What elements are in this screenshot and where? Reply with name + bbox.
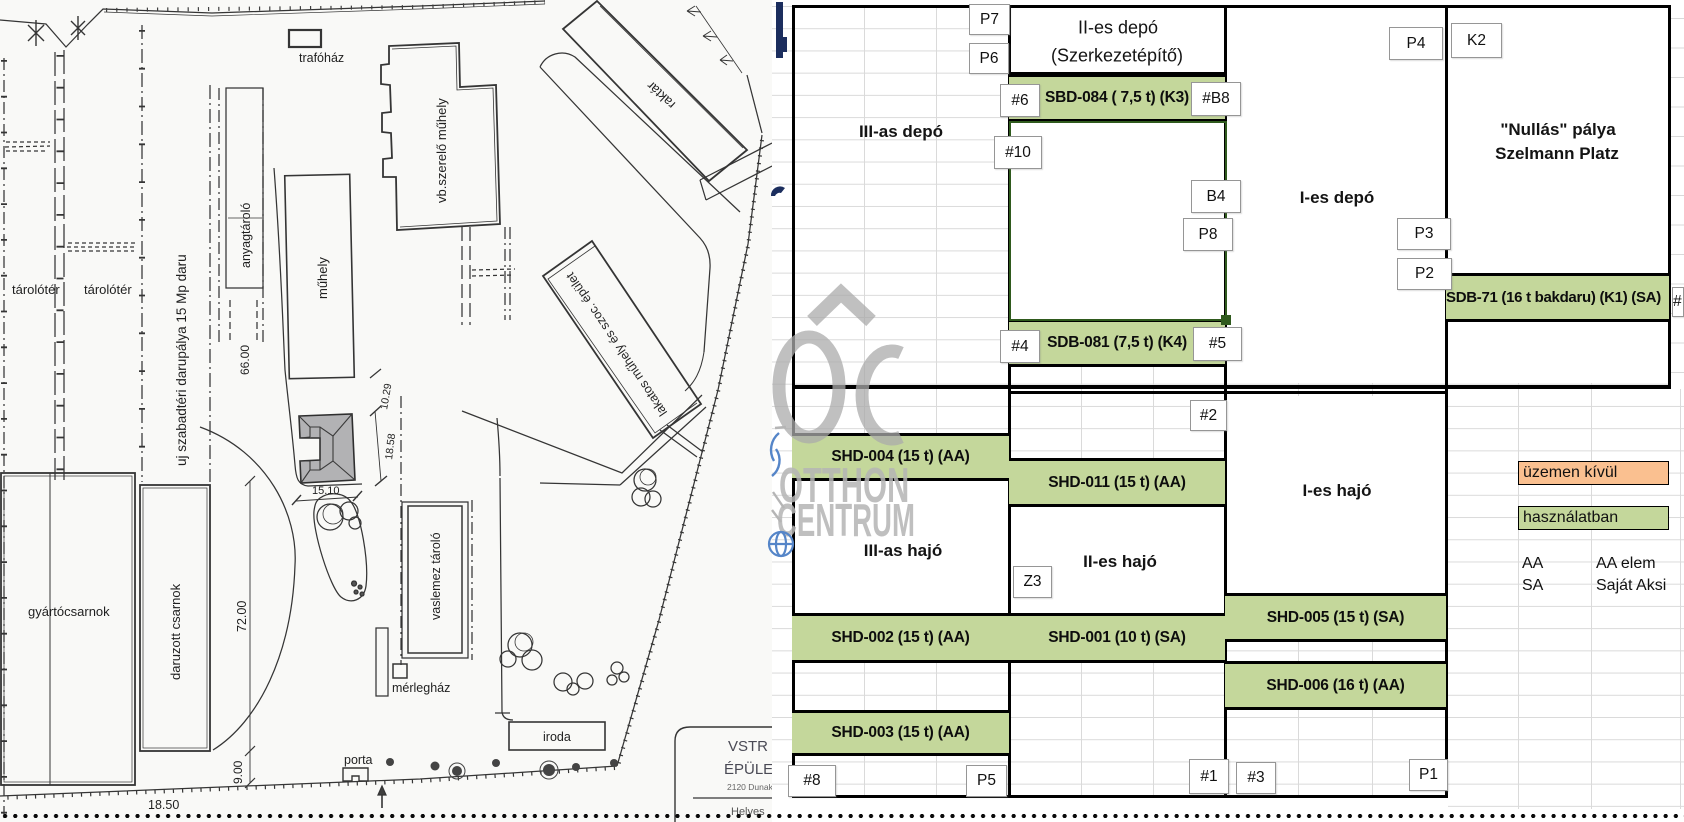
svg-text:72.00: 72.00 xyxy=(235,601,249,632)
svg-text:66.00: 66.00 xyxy=(238,345,252,375)
svg-text:uj szabadtéri darupálya 15 Mp: uj szabadtéri darupálya 15 Mp daru xyxy=(174,254,189,466)
svg-text:15.10: 15.10 xyxy=(312,485,340,497)
svg-text:mérlegház: mérlegház xyxy=(392,681,450,695)
svg-text:18.50: 18.50 xyxy=(148,798,179,812)
svg-text:trafóház: trafóház xyxy=(299,51,344,65)
svg-text:vaslemez tároló: vaslemez tároló xyxy=(429,532,443,620)
svg-text:anyagtároló: anyagtároló xyxy=(239,203,253,268)
svg-text:tárolótér: tárolótér xyxy=(12,282,60,297)
svg-text:gyártócsarnok: gyártócsarnok xyxy=(28,604,110,619)
svg-text:tárolótér: tárolótér xyxy=(84,282,132,297)
svg-text:daruzott csarnok: daruzott csarnok xyxy=(168,583,183,680)
svg-text:porta: porta xyxy=(344,753,373,767)
svg-text:vb.szerelő műhely: vb.szerelő műhely xyxy=(434,98,449,203)
svg-text:2120 Dunak: 2120 Dunak xyxy=(727,782,772,792)
svg-text:iroda: iroda xyxy=(543,730,571,744)
svg-text:9.00: 9.00 xyxy=(231,760,245,784)
svg-text:VSTR H: VSTR H xyxy=(728,738,772,755)
svg-text:műhely: műhely xyxy=(315,257,330,299)
svg-text:ÉPÜLET: ÉPÜLET xyxy=(724,760,772,778)
